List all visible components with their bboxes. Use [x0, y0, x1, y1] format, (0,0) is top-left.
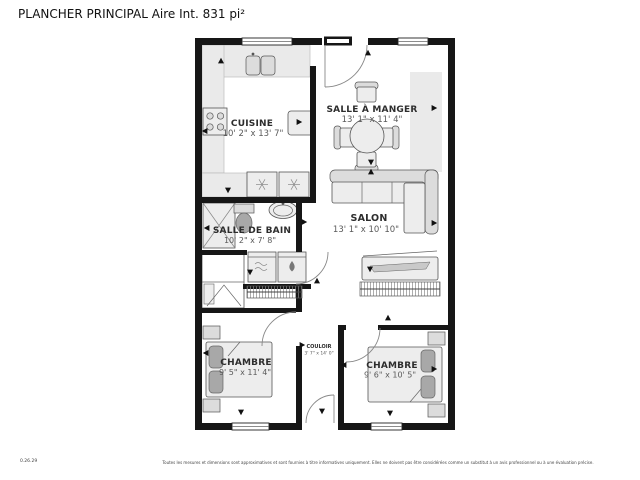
chair	[357, 87, 376, 102]
pillow	[421, 376, 435, 398]
camera-direction-icon	[302, 219, 308, 225]
room-dims-chambre-gauche: 9' 5" x 11' 4"	[219, 368, 271, 377]
bathroom-sink-icon	[269, 202, 297, 219]
room-label-chambre-gauche: CHAMBRE	[220, 358, 271, 368]
room-dims-cuisine: 10' 2" x 13' 7"	[223, 129, 284, 139]
room-label-cuisine: CUISINE	[231, 119, 273, 129]
footer-version: 0.26.29	[20, 459, 37, 464]
room-dims-salon: 13' 1" x 10' 10"	[333, 225, 399, 235]
footer-disclaimer: Toutes les mesures et dimensions sont ap…	[128, 460, 628, 465]
camera-direction-icon	[238, 410, 244, 416]
floorplan-page: PLANCHER PRINCIPAL Aire Int. 831 pi²	[0, 0, 640, 480]
nightstand	[203, 326, 220, 339]
chair	[357, 152, 376, 167]
window	[398, 38, 428, 45]
nightstand	[203, 399, 220, 412]
hall-door-opening	[302, 423, 338, 430]
closet-hatch-bedroom	[247, 286, 302, 298]
floorplan-drawing: CUISINE 10' 2" x 13' 7" SALLE À MANGER 1…	[0, 0, 640, 480]
room-dims-salle-a-manger: 13' 1" x 11' 4"	[342, 115, 403, 125]
room-label-salle-de-bain: SALLE DE BAIN	[213, 226, 291, 236]
camera-direction-icon	[300, 342, 306, 348]
window	[371, 423, 402, 430]
kitchen-counter-bottom	[202, 173, 247, 197]
room-label-couloir: COULOIR	[307, 344, 332, 350]
window	[232, 423, 269, 430]
window	[242, 38, 292, 45]
washer-icon	[248, 252, 276, 282]
closet-bifold	[202, 254, 244, 308]
dryer-icon	[278, 252, 306, 282]
camera-direction-icon	[385, 315, 391, 321]
dining-set	[334, 82, 399, 172]
room-label-salon: SALON	[351, 213, 388, 224]
dining-buffet	[410, 72, 442, 172]
nightstand	[428, 332, 445, 345]
camera-direction-icon	[387, 411, 393, 417]
room-label-salle-a-manger: SALLE À MANGER	[326, 103, 417, 115]
camera-direction-icon	[314, 278, 320, 284]
room-label-chambre-droite: CHAMBRE	[366, 361, 417, 371]
tv-console	[362, 251, 438, 280]
room-dims-couloir: 3' 7" x 14' 0"	[304, 351, 333, 357]
nightstand	[428, 404, 445, 417]
room-dims-chambre-droite: 9' 6" x 10' 5"	[364, 371, 416, 380]
bedroom-left-door-arc	[262, 312, 296, 346]
refrigerator-icon	[247, 172, 309, 197]
dishwasher	[288, 111, 313, 135]
closet-hatch-hall	[360, 282, 440, 296]
camera-direction-icon	[365, 50, 371, 56]
camera-direction-icon	[319, 409, 325, 415]
room-dims-salle-de-bain: 10' 2" x 7' 8"	[224, 236, 276, 245]
